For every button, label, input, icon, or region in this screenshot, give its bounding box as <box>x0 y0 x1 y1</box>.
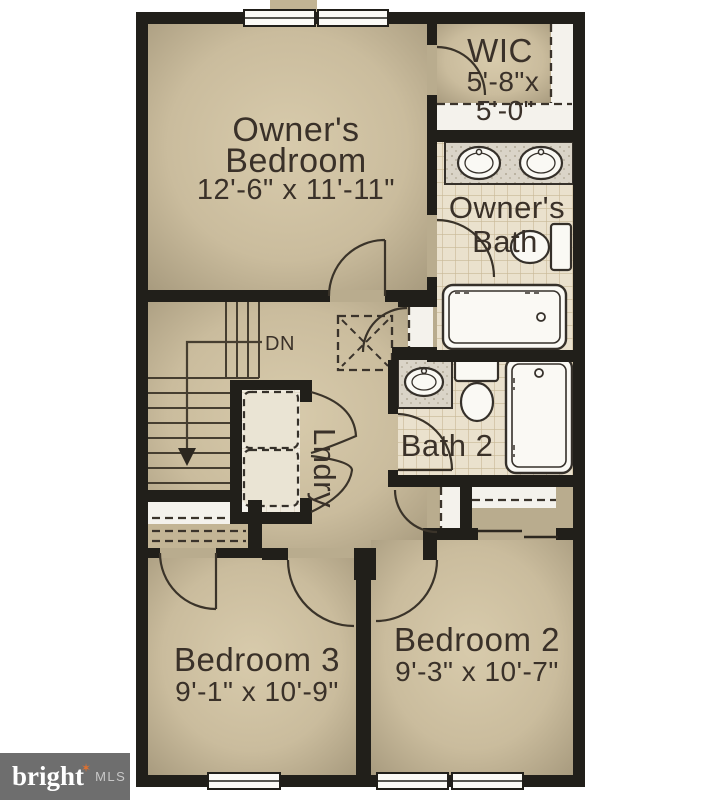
wic-shelf-right <box>551 24 573 103</box>
wall <box>148 548 160 558</box>
linen-closet-2 <box>440 487 461 530</box>
wall <box>398 296 437 307</box>
toilet-tank <box>551 224 571 270</box>
wall <box>460 478 472 532</box>
floor-plan-drawing: Owner's Bedroom 12'-6" x 11'-11" WIC 5'-… <box>0 0 711 800</box>
toilet-icon <box>461 383 493 421</box>
faucet-icon <box>538 149 543 154</box>
bath2-label: Bath 2 <box>401 428 494 463</box>
wic-dims-line1: 5'-8"x <box>467 66 540 97</box>
wall <box>556 528 574 540</box>
wall <box>427 12 437 45</box>
wall <box>300 390 312 402</box>
wall <box>148 490 230 502</box>
wall <box>460 528 478 540</box>
wall-outer-right <box>573 12 585 787</box>
wall <box>230 380 242 524</box>
wall-outer-left <box>136 12 148 787</box>
toilet-tank <box>455 359 498 381</box>
wic-label: WIC <box>467 32 533 69</box>
drain-icon <box>537 313 545 321</box>
wall <box>388 475 574 487</box>
wall <box>388 360 398 414</box>
bedroom2-closet-shelf <box>472 487 556 508</box>
faucet-icon <box>476 149 481 154</box>
wall <box>427 95 437 215</box>
wall <box>427 350 574 362</box>
washer-icon <box>244 392 298 448</box>
star-icon: ✶ <box>81 761 91 775</box>
wic-dims-line2: 5'-0" <box>476 95 534 126</box>
wall-bedroom-divider <box>356 575 371 775</box>
wall <box>427 130 574 142</box>
wall <box>392 347 437 360</box>
dryer-icon <box>244 450 298 506</box>
wall <box>262 548 288 560</box>
wall <box>230 380 312 390</box>
bright-mls-org-text: MLS <box>95 769 126 784</box>
faucet-icon <box>422 369 427 374</box>
bathtub-icon <box>443 285 566 349</box>
bright-mls-brand-text: bright <box>12 763 84 790</box>
bedroom3-label: Bedroom 3 <box>174 641 340 678</box>
drain-icon <box>535 369 543 377</box>
linen-closet <box>408 307 433 347</box>
bedroom2-dims: 9'-3" x 10'-7" <box>395 656 559 687</box>
owners-bath-label-line1: Owner's <box>449 190 565 225</box>
owners-bath-label-line2: Bath <box>472 224 538 259</box>
wall <box>148 290 330 302</box>
stairs-dn-label: DN <box>265 333 295 355</box>
bright-mls-watermark: bright✶MLS <box>0 753 130 800</box>
bedroom2-label: Bedroom 2 <box>394 621 560 658</box>
bedroom3-dims: 9'-1" x 10'-9" <box>175 676 339 707</box>
laundry-label: Lndry <box>307 428 342 508</box>
bedroom3-closet-floor <box>148 524 248 548</box>
owners-bedroom-dims: 12'-6" x 11'-11" <box>197 174 395 206</box>
floor-plan-page: Owner's Bedroom 12'-6" x 11'-11" WIC 5'-… <box>0 0 711 800</box>
wall <box>216 548 262 558</box>
wall <box>230 512 312 524</box>
